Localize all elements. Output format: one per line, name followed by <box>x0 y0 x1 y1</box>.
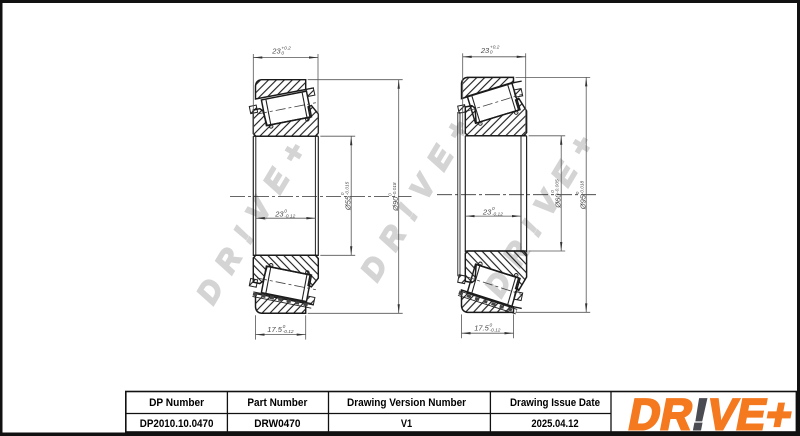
svg-text:0: 0 <box>492 206 495 212</box>
svg-text:Part Number: Part Number <box>247 397 308 409</box>
svg-text:-0.12: -0.12 <box>490 328 501 334</box>
svg-text:Ø95: Ø95 <box>578 194 587 210</box>
svg-text:0: 0 <box>283 324 286 330</box>
svg-text:-0.018: -0.018 <box>580 180 586 194</box>
svg-text:Ø55: Ø55 <box>343 195 352 211</box>
svg-text:17.5: 17.5 <box>474 324 489 333</box>
svg-text:0: 0 <box>281 50 284 56</box>
svg-text:2025.04.12: 2025.04.12 <box>531 418 578 430</box>
svg-text:23: 23 <box>274 210 284 219</box>
svg-text:0: 0 <box>490 50 493 56</box>
svg-text:Drawing Version Number: Drawing Version Number <box>347 397 467 409</box>
svg-text:-0.12: -0.12 <box>492 211 503 217</box>
svg-text:DP2010.10.0470: DP2010.10.0470 <box>140 418 214 430</box>
svg-text:DP Number: DP Number <box>149 397 205 409</box>
svg-text:V1: V1 <box>401 418 412 430</box>
svg-text:Drawing Issue Date: Drawing Issue Date <box>510 397 600 409</box>
svg-text:-0.015: -0.015 <box>345 181 351 195</box>
svg-text:DR!VE+: DR!VE+ <box>625 391 797 436</box>
svg-text:-0.005: -0.005 <box>555 179 561 193</box>
svg-text:Ø60: Ø60 <box>553 193 562 209</box>
svg-text:-0.12: -0.12 <box>284 213 295 219</box>
svg-text:+0.2: +0.2 <box>490 45 500 51</box>
svg-text:23: 23 <box>482 207 492 216</box>
svg-text:DRW0470: DRW0470 <box>254 418 300 430</box>
svg-text:0: 0 <box>284 208 287 214</box>
svg-text:17.5: 17.5 <box>267 325 282 334</box>
svg-text:+0.2: +0.2 <box>281 45 291 51</box>
svg-text:-0.12: -0.12 <box>283 329 294 335</box>
svg-text:23: 23 <box>480 46 490 55</box>
svg-text:0: 0 <box>490 322 493 328</box>
svg-text:23: 23 <box>271 47 281 56</box>
svg-text:Ø90: Ø90 <box>391 196 400 212</box>
svg-text:-0.018: -0.018 <box>392 182 398 196</box>
